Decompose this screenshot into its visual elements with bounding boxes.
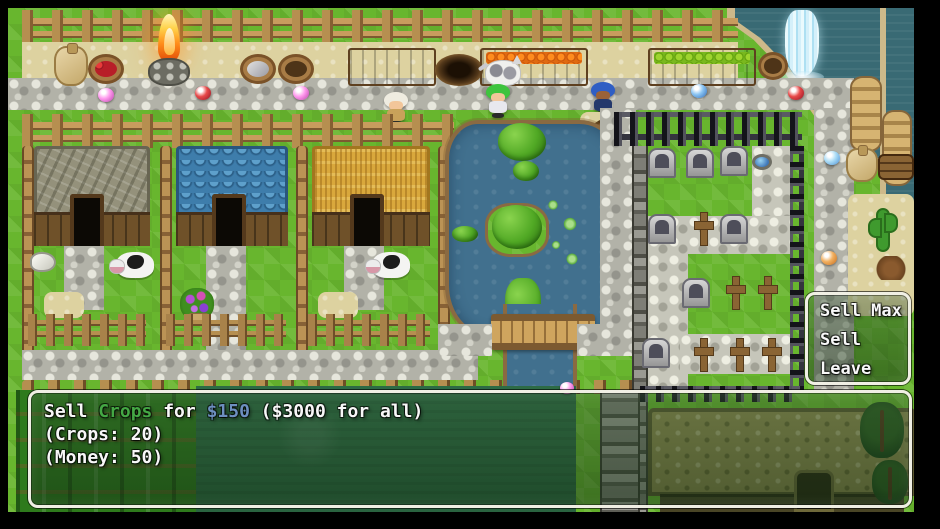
dialog-price: $150	[207, 401, 250, 422]
map-viewport: Sell Max Sell Leave Sell Crops for $150 …	[8, 8, 914, 512]
tombstone-7	[642, 338, 670, 368]
green-apple-produce	[654, 52, 750, 64]
cat-sprite	[485, 60, 521, 86]
bridge-path-left	[438, 324, 492, 356]
dialog-line-crops-count: (Crops: 20)	[44, 423, 896, 446]
empty-basket	[278, 54, 314, 84]
grave-cross-6	[760, 338, 782, 370]
red-orb-2	[788, 86, 804, 100]
island-bush	[492, 205, 542, 249]
empty-basket-2	[758, 52, 788, 80]
barn-stone-door	[70, 194, 104, 246]
tombstone-2	[686, 148, 714, 178]
graveyard-fence-right	[790, 146, 804, 392]
wood-pile	[878, 154, 914, 180]
npc-green-hair	[485, 84, 511, 118]
white-rock	[30, 252, 56, 272]
cow-2	[372, 252, 410, 278]
dead-shrub	[876, 256, 906, 280]
shore-shrub	[452, 226, 478, 242]
barn-thatch-door	[350, 194, 384, 246]
menu-item-sell-max[interactable]: Sell Max	[808, 297, 908, 326]
grave-cross-2	[724, 276, 746, 308]
silver-basket	[240, 54, 276, 84]
picket-fence-1	[28, 314, 146, 346]
grave-cross-1	[692, 212, 714, 244]
grave-cross-4	[692, 338, 714, 370]
farm-bottom-path	[22, 350, 478, 380]
cow-1	[116, 252, 154, 278]
cyan-orb	[824, 151, 840, 165]
dialog-sell-prefix: Sell	[44, 401, 98, 422]
choice-window: Sell Max Sell Leave	[805, 292, 911, 385]
dialog-line-1: Sell Crops for $150 ($3000 for all)	[44, 400, 896, 423]
picket-fence-2	[166, 314, 286, 346]
red-orb	[195, 86, 211, 100]
campfire-stones	[148, 58, 190, 86]
dialog-line-money-count: (Money: 50)	[44, 446, 896, 469]
blue-orb	[691, 84, 707, 98]
npc-green-hair-body	[489, 101, 507, 113]
grave-cross-3	[756, 276, 778, 308]
menu-item-leave[interactable]: Leave	[808, 355, 908, 384]
dialog-for-text: for	[152, 401, 206, 422]
grain-sack	[54, 46, 88, 86]
tombstone-4	[648, 214, 676, 244]
apple-basket	[88, 54, 124, 84]
dialog-item-name: Crops	[98, 401, 152, 422]
stall-counter-1	[348, 48, 436, 86]
grain-sack-2	[846, 148, 878, 182]
npc-green-hair-feet	[492, 113, 504, 118]
message-window: Sell Crops for $150 ($3000 for all) (Cro…	[28, 390, 912, 508]
cactus	[876, 208, 890, 252]
storage-pit	[435, 54, 483, 86]
fence-top	[22, 10, 738, 44]
picket-fence-3	[308, 314, 430, 346]
grave-cross-5	[728, 338, 750, 370]
game-screen: Sell Max Sell Leave Sell Crops for $150 …	[0, 0, 940, 529]
pond-bubbles	[543, 193, 583, 273]
barn-blue-door	[212, 194, 246, 246]
pink-orb	[98, 88, 114, 102]
orange-orb	[821, 251, 837, 265]
stall-counter-apples	[648, 48, 756, 86]
tombstone-3	[720, 146, 748, 176]
menu-item-sell[interactable]: Sell	[808, 326, 908, 355]
small-pool	[752, 154, 772, 170]
bush-large	[498, 123, 546, 161]
dialog-total-text: ($3000 for all)	[250, 401, 423, 422]
farm-fence-post-col-3	[296, 146, 308, 358]
fence-second-row	[22, 114, 454, 148]
tombstone-5	[720, 214, 748, 244]
tombstone-1	[648, 148, 676, 178]
pink-orb-2	[293, 86, 309, 100]
hay-bale-1	[850, 76, 882, 152]
graveyard-fence-top	[614, 112, 802, 146]
tombstone-6	[682, 278, 710, 308]
waterfall	[785, 10, 819, 76]
bush-small	[513, 161, 539, 181]
